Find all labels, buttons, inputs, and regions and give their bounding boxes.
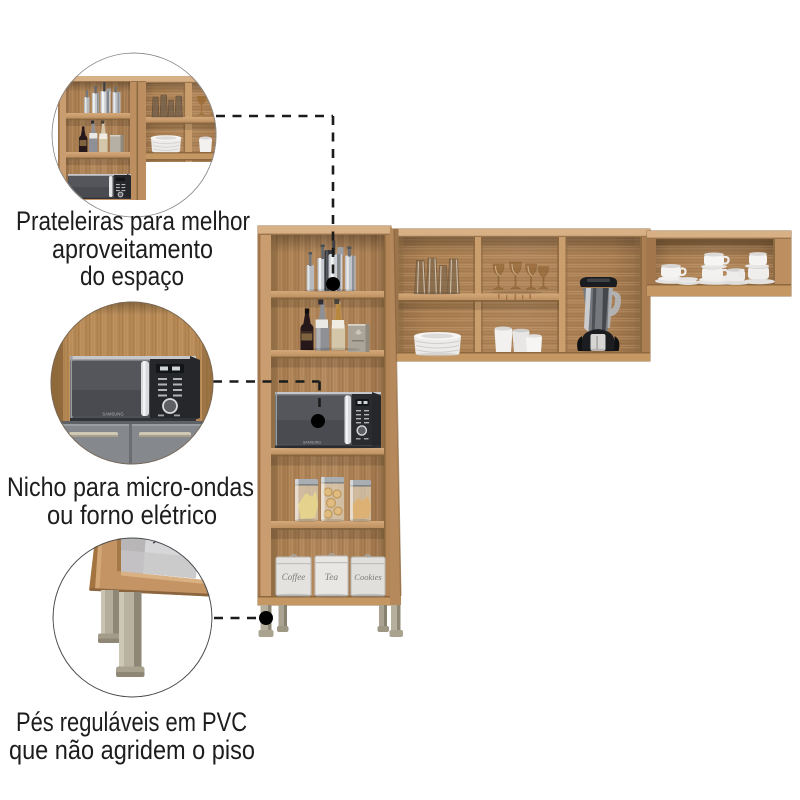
svg-text:SAMSUNG: SAMSUNG	[102, 412, 123, 417]
svg-text:Nicho para micro-ondas: Nicho para micro-ondas	[7, 472, 254, 502]
svg-text:aproveitamento: aproveitamento	[52, 234, 213, 264]
svg-text:Cookies: Cookies	[354, 572, 382, 582]
svg-text:SAMSUNG: SAMSUNG	[303, 441, 321, 445]
svg-text:que não agridem o piso: que não agridem o piso	[9, 735, 255, 765]
svg-text:Tea: Tea	[325, 573, 339, 583]
svg-text:Pés reguláveis em PVC: Pés reguláveis em PVC	[16, 707, 247, 737]
svg-text:Prateleiras para melhor: Prateleiras para melhor	[16, 206, 250, 236]
svg-text:ou forno elétrico: ou forno elétrico	[47, 500, 217, 530]
svg-text:do espaço: do espaço	[80, 261, 184, 291]
svg-text:Coffee: Coffee	[282, 572, 306, 582]
